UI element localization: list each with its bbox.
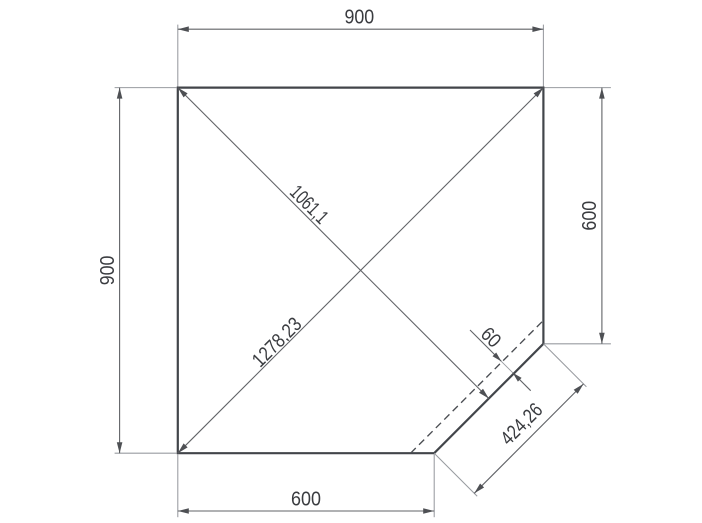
svg-text:900: 900 xyxy=(97,256,119,286)
svg-text:900: 900 xyxy=(344,6,374,28)
svg-text:600: 600 xyxy=(579,201,601,231)
svg-text:600: 600 xyxy=(291,489,321,511)
